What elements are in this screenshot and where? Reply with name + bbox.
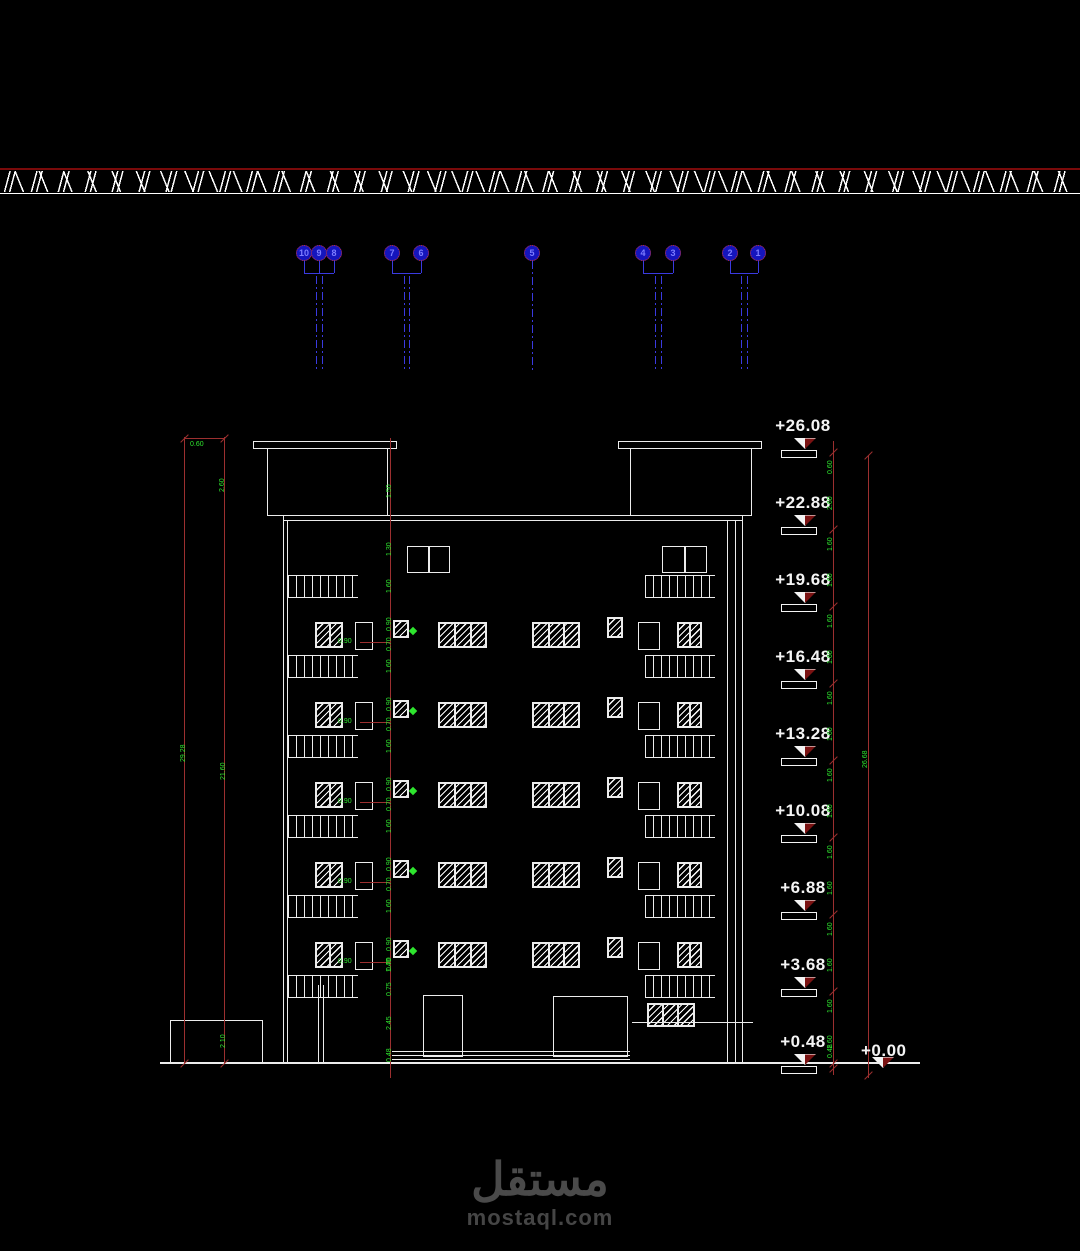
door-right — [638, 782, 660, 810]
center-dim-text: 1.60 — [386, 579, 393, 593]
pane-divider — [329, 704, 331, 726]
column-connector — [643, 273, 673, 274]
chain-dim-text: 1.60 — [827, 768, 834, 782]
chain-dim-text: 1.60 — [827, 881, 834, 895]
window-3pane-center-a — [438, 782, 487, 808]
center-dim-text: 0.90 — [386, 617, 393, 631]
right-wall-inner-line-1 — [727, 520, 728, 1063]
chain-dim-text: 0.48 — [827, 1044, 834, 1058]
column-connector — [304, 261, 305, 273]
pane-divider — [470, 944, 472, 966]
level-label: +22.88 — [772, 493, 834, 513]
window-3pane-center-b — [532, 622, 580, 648]
window-small-center — [393, 860, 409, 878]
pane-divider — [689, 864, 691, 886]
center-dim-text: 1.50 — [386, 484, 393, 498]
center-dim-text: 0.90 — [386, 937, 393, 951]
balcony-railing-left — [288, 655, 358, 678]
level-triangle-icon — [794, 592, 816, 603]
entry-step-line — [392, 1059, 630, 1060]
window-3pane-center-b — [532, 782, 580, 808]
dim-text-upper: 2.60 — [219, 478, 226, 492]
pane-divider — [689, 704, 691, 726]
level-label: +6.88 — [772, 878, 834, 898]
balcony-railing-right — [645, 655, 715, 678]
center-dim-text: 0.90 — [386, 857, 393, 871]
dim-text-parapet: 0.60 — [190, 441, 204, 448]
chain-dim-text: 1.60 — [827, 650, 834, 664]
watermark: مستقل mostaql.com — [390, 1155, 690, 1231]
pane-divider — [563, 944, 565, 966]
chain-dim-text: 1.60 — [827, 922, 834, 936]
total-dim-text: 26.68 — [862, 750, 869, 768]
left-tower-body — [267, 448, 388, 516]
left-dim-connector — [184, 438, 225, 439]
center-dim-text: 2.45 — [386, 1016, 393, 1030]
right-tower-body — [630, 448, 752, 516]
window-2pane-right — [677, 702, 702, 728]
window-3pane-center-b — [532, 862, 580, 888]
column-bubble-2: 2 — [722, 245, 738, 261]
level-bar — [781, 681, 817, 689]
center-dim-text: 0.70 — [386, 877, 393, 891]
planter-line — [632, 1022, 753, 1023]
level-label: +26.08 — [772, 416, 834, 436]
column-bubble-9: 9 — [311, 245, 327, 261]
pane-divider — [689, 784, 691, 806]
chain-dim-text: 1.60 — [827, 845, 834, 859]
pane-divider — [689, 944, 691, 966]
window-small-right — [607, 777, 623, 798]
window-small-center — [393, 940, 409, 958]
window-3pane-center-a — [438, 702, 487, 728]
pane-divider — [470, 864, 472, 886]
window-2pane-right — [677, 862, 702, 888]
pane-divider — [548, 784, 550, 806]
chain-dim-text: 1.60 — [827, 614, 834, 628]
column-connector — [421, 261, 422, 273]
level-label: +10.08 — [772, 801, 834, 821]
window-small-center — [393, 780, 409, 798]
balcony-railing-right — [645, 735, 715, 758]
center-dim-text: 0.90 — [386, 777, 393, 791]
window-height-label: 0.90 — [338, 798, 352, 805]
entry-step-line — [392, 1055, 630, 1056]
entrance-opening-right — [553, 996, 628, 1057]
watermark-logo: مستقل — [390, 1155, 690, 1203]
column-bubble-5: 5 — [524, 245, 540, 261]
pane-divider — [454, 624, 456, 646]
center-dim-text: 1.60 — [386, 819, 393, 833]
entry-step-line — [392, 1051, 630, 1052]
porch-line-a — [318, 985, 319, 1063]
window-small-right — [607, 617, 623, 638]
hatch-top-line — [0, 168, 1080, 170]
watermark-site: mostaql.com — [390, 1205, 690, 1231]
dim-text-bottom: 2.10 — [220, 1034, 227, 1048]
door-right — [638, 622, 660, 650]
level-triangle-icon — [794, 823, 816, 834]
pane-divider — [329, 624, 331, 646]
window-small-right — [607, 857, 623, 878]
pane-divider — [470, 784, 472, 806]
chain-dim-text: 1.60 — [827, 537, 834, 551]
column-bubble-8: 8 — [326, 245, 342, 261]
center-dim-text: 1.60 — [386, 899, 393, 913]
chain-dim-text: 1.60 — [827, 573, 834, 587]
window-height-label: 0.90 — [338, 718, 352, 725]
column-connector — [304, 273, 334, 274]
level-triangle-icon — [794, 669, 816, 680]
level-triangle-icon — [794, 515, 816, 526]
level-triangle-icon — [794, 977, 816, 988]
level-label: +13.28 — [772, 724, 834, 744]
column-centerline — [404, 276, 405, 372]
level-bar — [781, 835, 817, 843]
window-3pane-center-a — [438, 862, 487, 888]
balcony-railing-left — [288, 735, 358, 758]
door-left — [355, 862, 373, 890]
level-bar — [781, 989, 817, 997]
pane-divider — [329, 784, 331, 806]
column-centerline — [747, 276, 748, 372]
balcony-railing-right — [645, 815, 715, 838]
column-bubble-4: 4 — [635, 245, 651, 261]
chain-dim-text: 1.60 — [827, 727, 834, 741]
chain-dim-text: 1.60 — [827, 999, 834, 1013]
level-bar — [781, 1066, 817, 1074]
center-dim-text: 1.30 — [386, 542, 393, 556]
center-dim-text: 1.40 — [386, 958, 393, 972]
column-connector — [643, 261, 644, 273]
right-wall-inner-line-2 — [735, 520, 736, 1063]
level-bar — [781, 450, 817, 458]
center-dim-text: 0.70 — [386, 797, 393, 811]
window-2pane-right — [677, 622, 702, 648]
datum-triangle-icon — [872, 1057, 894, 1068]
hatch-pattern — [0, 171, 1080, 192]
pane-divider — [684, 547, 686, 572]
window-3pane-center-b — [532, 702, 580, 728]
roof-box-right — [662, 546, 707, 573]
column-bubble-3: 3 — [665, 245, 681, 261]
window-small-right — [607, 937, 623, 958]
column-bubble-1: 1 — [750, 245, 766, 261]
level-label: +3.68 — [772, 955, 834, 975]
dim-text-outer-total: 29.28 — [180, 744, 187, 762]
parapet-inner-line — [284, 520, 742, 521]
balcony-railing-right — [645, 895, 715, 918]
pane-divider — [563, 704, 565, 726]
column-bubble-10: 10 — [296, 245, 312, 261]
pane-divider — [470, 624, 472, 646]
door-right — [638, 942, 660, 970]
column-centerline — [741, 276, 742, 372]
center-dim-text: 1.60 — [386, 659, 393, 673]
column-centerline — [316, 276, 317, 372]
window-2pane-right — [677, 782, 702, 808]
balcony-railing-left — [288, 815, 358, 838]
chain-dim-text: 1.60 — [827, 691, 834, 705]
window-small-center — [393, 620, 409, 638]
balcony-railing-left — [288, 895, 358, 918]
window-height-label: 0.90 — [338, 638, 352, 645]
pane-divider — [548, 624, 550, 646]
pane-divider — [454, 704, 456, 726]
pane-divider — [548, 864, 550, 886]
center-dim-text: 0.75 — [386, 982, 393, 996]
door-left — [355, 702, 373, 730]
left-inner-dim-line — [224, 437, 225, 1063]
pane-divider — [454, 864, 456, 886]
level-label: +16.48 — [772, 647, 834, 667]
window-3pane-center-b — [532, 942, 580, 968]
window-small-right — [607, 697, 623, 718]
balcony-railing-left — [288, 575, 358, 598]
level-triangle-icon — [794, 1054, 816, 1065]
center-dim-text: 0.70 — [386, 717, 393, 731]
column-connector — [392, 261, 393, 273]
pane-divider — [329, 864, 331, 886]
balcony-railing-right — [645, 975, 715, 998]
earth-hatch-strip — [0, 168, 1080, 196]
column-centerline — [655, 276, 656, 372]
door-right — [638, 702, 660, 730]
pane-divider — [548, 704, 550, 726]
column-bubble-7: 7 — [384, 245, 400, 261]
window-2pane-right — [677, 942, 702, 968]
pane-divider — [689, 624, 691, 646]
column-connector — [730, 261, 731, 273]
porch-line-b — [323, 985, 324, 1063]
window-height-label: 0.90 — [338, 878, 352, 885]
center-dim-text: 1.60 — [386, 739, 393, 753]
column-centerline — [409, 276, 410, 372]
cad-drawing-canvas: 10987654321 0.900.900.900.900.90 0.60 2.… — [0, 0, 1080, 1251]
center-dim-text: 0.90 — [386, 697, 393, 711]
roof-box-left — [407, 546, 450, 573]
center-dim-text: 0.48 — [386, 1048, 393, 1062]
balcony-railing-right — [645, 575, 715, 598]
column-connector — [673, 261, 674, 273]
pane-divider — [329, 944, 331, 966]
window-3pane-center-a — [438, 622, 487, 648]
pane-divider — [428, 547, 430, 572]
window-small-center — [393, 700, 409, 718]
dim-text-inner-total: 21.60 — [220, 762, 227, 780]
pane-divider — [454, 944, 456, 966]
door-right — [638, 862, 660, 890]
pane-divider — [563, 864, 565, 886]
column-connector — [758, 261, 759, 273]
window-height-label: 0.90 — [338, 958, 352, 965]
level-triangle-icon — [794, 900, 816, 911]
column-centerline — [322, 276, 323, 372]
pane-divider — [548, 944, 550, 966]
door-left — [355, 782, 373, 810]
column-connector — [730, 273, 758, 274]
level-bar — [781, 604, 817, 612]
window-3pane-center-a — [438, 942, 487, 968]
pane-divider — [470, 704, 472, 726]
level-bar — [781, 758, 817, 766]
pane-divider — [454, 784, 456, 806]
entrance-opening-left — [423, 995, 463, 1057]
column-connector — [319, 261, 320, 273]
chain-dim-text: 1.60 — [827, 958, 834, 972]
column-centerline — [661, 276, 662, 372]
door-left — [355, 622, 373, 650]
level-label: +19.68 — [772, 570, 834, 590]
level-bar — [781, 912, 817, 920]
ground-window-3pane — [647, 1003, 695, 1027]
chain-dim-text: 2.60 — [827, 496, 834, 510]
level-triangle-icon — [794, 746, 816, 757]
level-bar — [781, 527, 817, 535]
column-connector — [334, 261, 335, 273]
chain-dim-text: 1.60 — [827, 804, 834, 818]
center-dim-text: 0.70 — [386, 637, 393, 651]
pane-divider — [563, 784, 565, 806]
level-label: +0.48 — [772, 1032, 834, 1052]
hatch-base-line — [0, 193, 1080, 194]
door-left — [355, 942, 373, 970]
level-triangle-icon — [794, 438, 816, 449]
chain-dim-text: 0.60 — [827, 460, 834, 474]
pane-divider — [563, 624, 565, 646]
column-centerline — [532, 261, 533, 372]
column-connector — [392, 273, 421, 274]
column-bubble-6: 6 — [413, 245, 429, 261]
